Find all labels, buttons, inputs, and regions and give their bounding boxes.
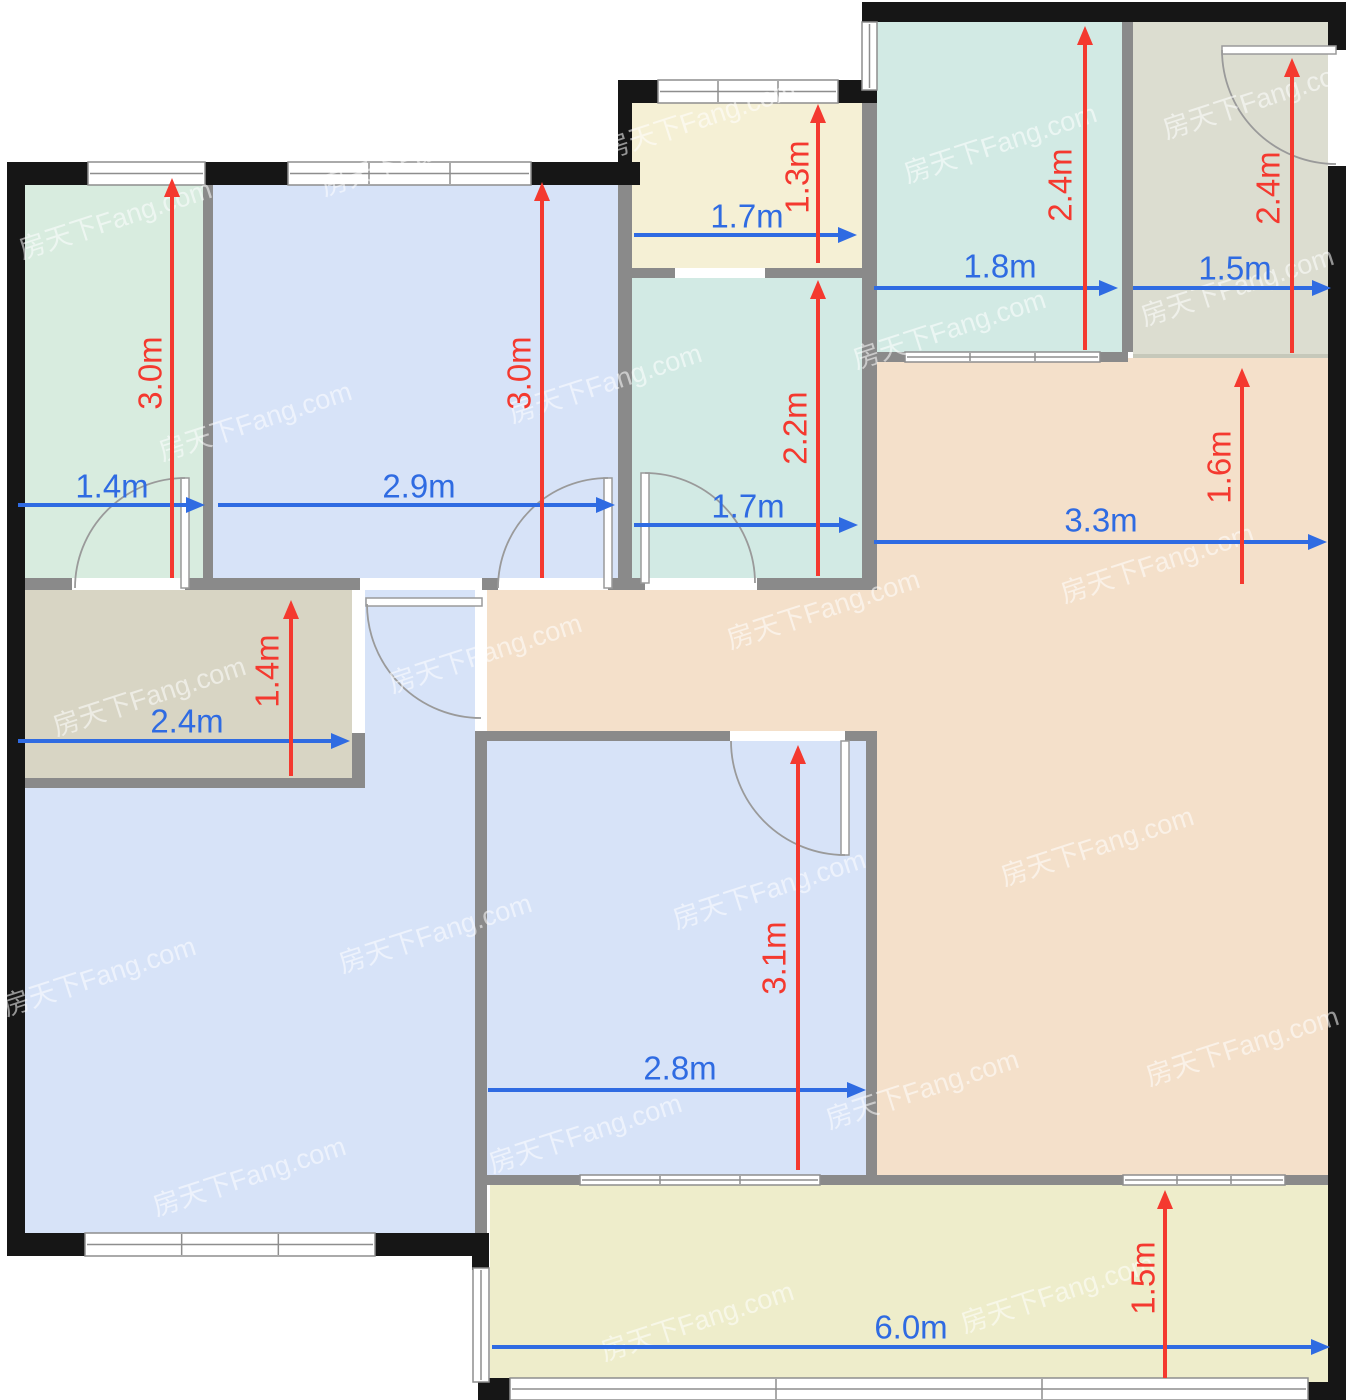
door-opening (498, 578, 608, 590)
room-bathroom-middle (632, 278, 862, 578)
dimension-label: 1.6m (1201, 430, 1238, 503)
interior-wall (820, 1175, 877, 1185)
door-opening (352, 590, 365, 733)
dimension-label: 1.7m (711, 488, 784, 525)
interior-wall (352, 733, 365, 788)
door-leaf (641, 473, 649, 583)
exterior-wall (375, 1233, 489, 1256)
dimension-label: 1.5m (1198, 250, 1271, 287)
door-opening (730, 731, 845, 741)
exterior-wall (862, 2, 1346, 22)
dimension-label: 1.4m (249, 634, 286, 707)
exterior-wall (205, 162, 288, 185)
soft-edge (1133, 354, 1328, 358)
interior-wall (203, 185, 213, 578)
dimension-label: 1.4m (75, 468, 148, 505)
exterior-wall (1328, 2, 1346, 50)
interior-wall (1122, 20, 1133, 352)
interior-wall (608, 578, 645, 590)
dimension-label: 2.2m (777, 391, 814, 464)
exterior-wall (7, 1233, 85, 1256)
dimension-label: 2.4m (1250, 151, 1287, 224)
door-leaf (366, 598, 482, 606)
exterior-wall (7, 162, 25, 1256)
dimension-label: 2.4m (1042, 148, 1079, 221)
interior-wall (845, 731, 877, 741)
dimension-label: 1.8m (963, 248, 1036, 285)
dimension-label: 2.4m (150, 703, 223, 740)
interior-wall (7, 778, 365, 788)
interior-wall (877, 1175, 1123, 1185)
floor-plan-canvas: 房天下Fang.com房天下Fang.com房天下Fang.com房天下Fang… (0, 0, 1346, 1400)
dimension-label: 1.5m (1125, 1241, 1162, 1314)
dimension-label: 6.0m (874, 1309, 947, 1346)
floor-plan: 房天下Fang.com房天下Fang.com房天下Fang.com房天下Fang… (0, 0, 1346, 1400)
dimension-label: 1.3m (779, 140, 816, 213)
door-leaf (841, 741, 849, 855)
door-opening (360, 578, 482, 590)
dimension-label: 3.0m (501, 336, 538, 409)
door-opening (72, 578, 185, 590)
dimension-label: 3.3m (1064, 502, 1137, 539)
dimension-label: 1.7m (710, 198, 783, 235)
door-opening (645, 578, 757, 590)
door-leaf (1222, 46, 1336, 54)
exterior-wall (1328, 166, 1346, 1382)
interior-wall (1100, 352, 1128, 362)
exterior-wall (1308, 1382, 1346, 1400)
door-leaf (604, 478, 612, 588)
dimension-label: 2.8m (643, 1050, 716, 1087)
interior-wall (475, 731, 487, 1248)
interior-wall (765, 268, 862, 278)
interior-wall (185, 578, 360, 590)
dimension-label: 3.1m (756, 921, 793, 994)
exterior-wall (472, 1233, 489, 1270)
dimension-label: 2.9m (382, 468, 455, 505)
interior-wall (487, 731, 730, 741)
interior-wall (25, 578, 72, 590)
door-leaf (181, 478, 189, 588)
dimension-label: 3.0m (132, 336, 169, 409)
door-opening (675, 268, 765, 278)
interior-wall (482, 578, 498, 590)
room-bedroom-north (213, 175, 618, 578)
interior-wall (1285, 1175, 1328, 1185)
interior-wall (632, 268, 675, 278)
